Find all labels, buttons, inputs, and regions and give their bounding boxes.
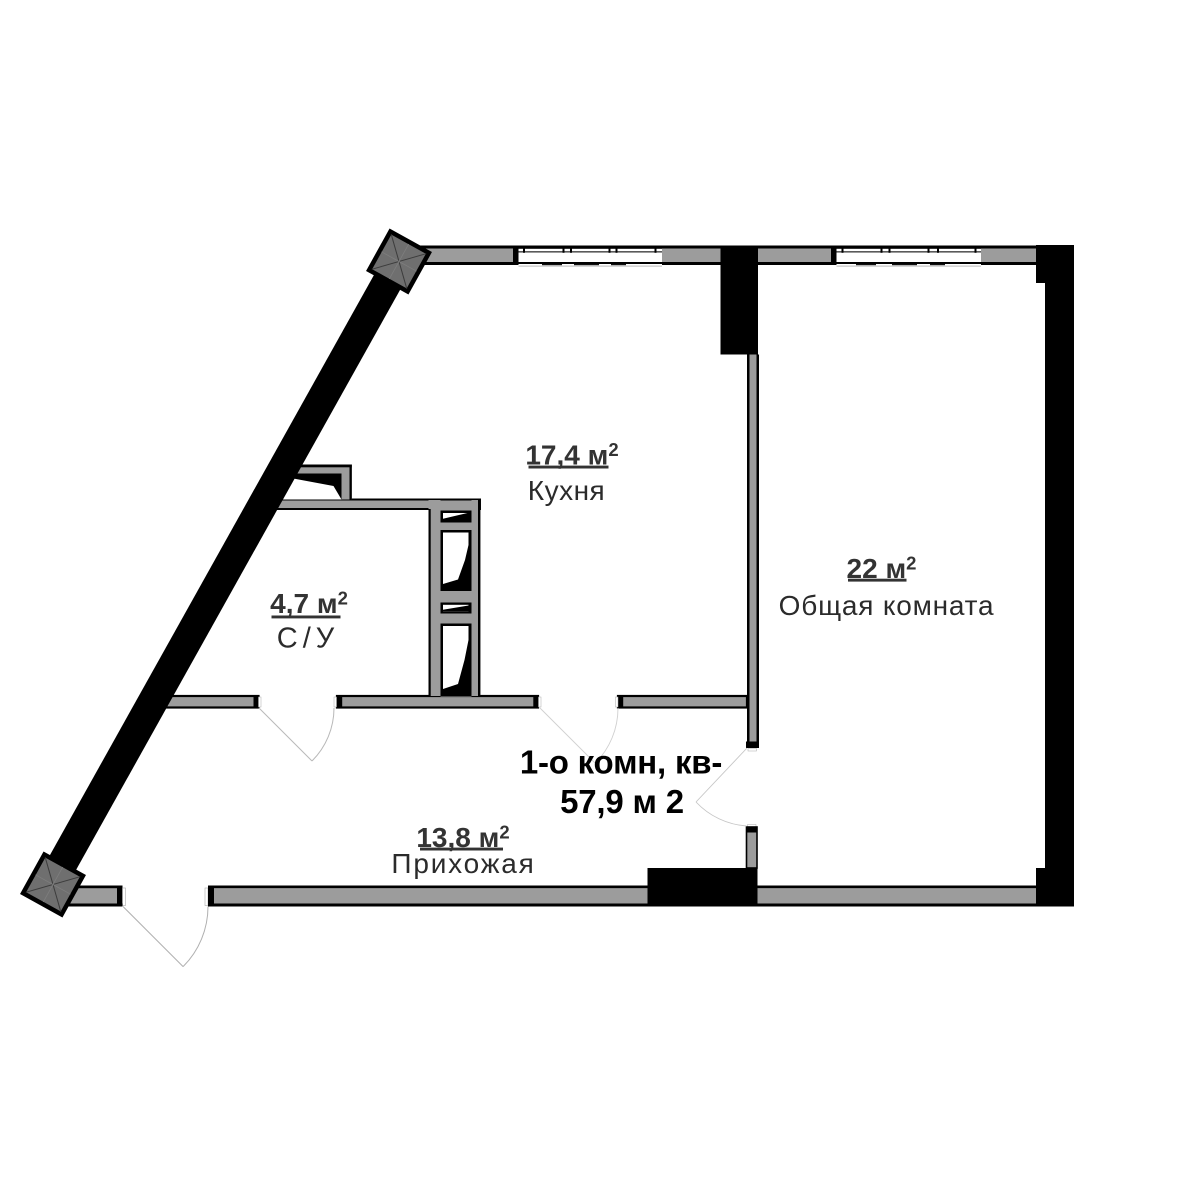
svg-text:57,9 м 2: 57,9 м 2 <box>560 783 684 820</box>
svg-text:1-о комн, кв-: 1-о комн, кв- <box>520 744 722 781</box>
svg-text:Кухня: Кухня <box>528 475 605 506</box>
svg-text:С/У: С/У <box>277 623 339 655</box>
svg-text:4,7 м2: 4,7 м2 <box>270 588 348 620</box>
svg-text:Прихожая: Прихожая <box>391 848 535 879</box>
svg-text:Общая комната: Общая комната <box>779 590 995 621</box>
